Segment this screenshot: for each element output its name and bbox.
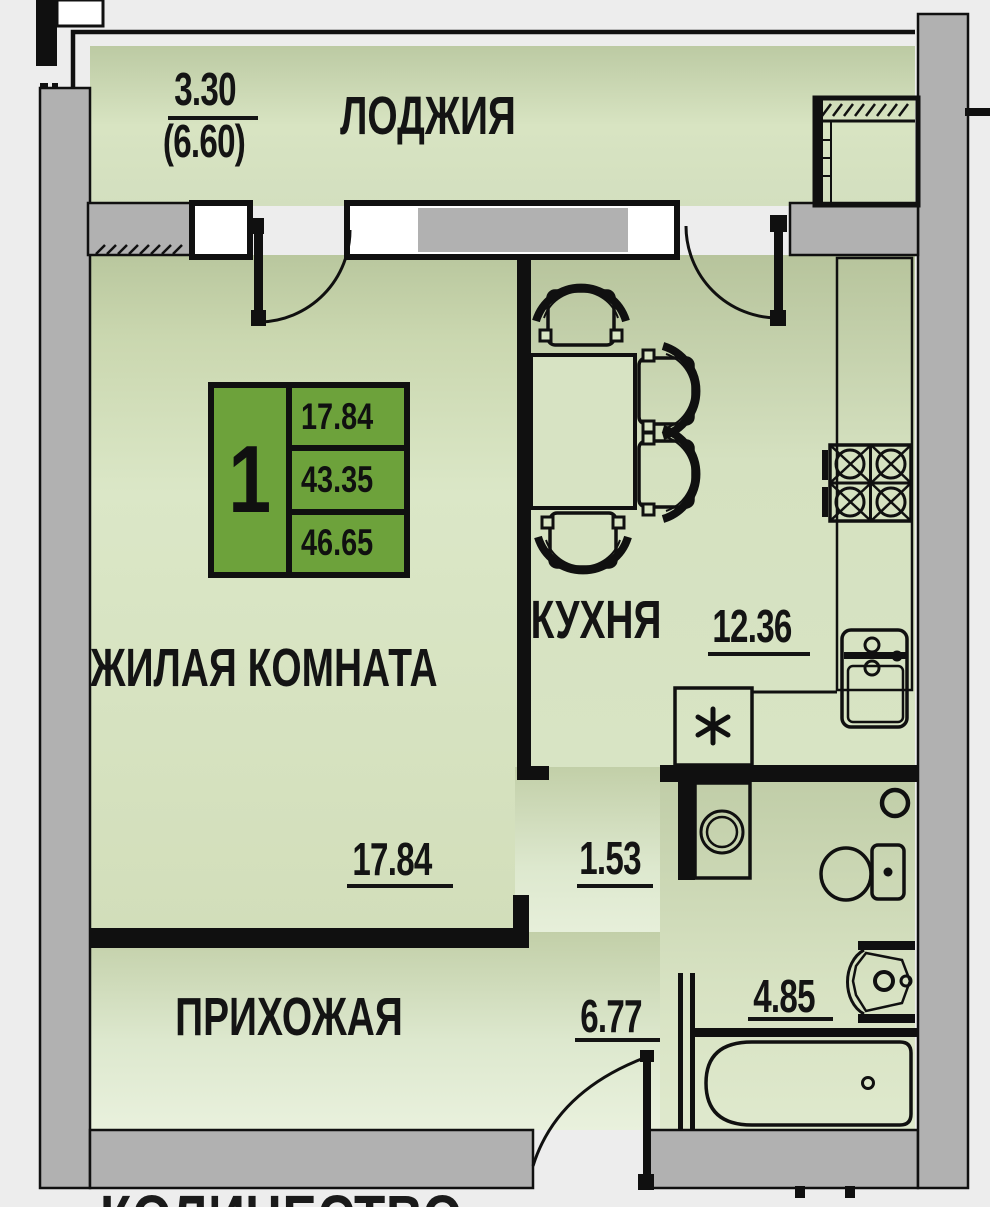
unit-number-cell: 1 <box>214 388 286 572</box>
neighbour-window-fragment <box>57 0 103 26</box>
dining-table-icon <box>531 355 635 508</box>
wall-bottom-left <box>90 1130 533 1188</box>
wall-kitchen-foot <box>531 766 549 780</box>
wall-bathroom-left-upper <box>678 782 695 880</box>
loggia-sill-right <box>790 203 918 255</box>
unit-area-row: 17.84 <box>292 388 404 445</box>
wall-tick <box>795 1186 805 1198</box>
loggia-dim-denominator: (6.60) <box>163 118 245 164</box>
bathroom-dim: 4.85 <box>753 973 815 1019</box>
dim-underline <box>577 884 653 888</box>
wall-bathroom-top <box>660 765 918 782</box>
hallway-label: ПРИХОЖАЯ <box>175 990 403 1044</box>
neighbour-wall-fragment <box>36 0 57 66</box>
wall-left <box>40 88 90 1188</box>
wall-bathroom-left-lower <box>678 973 683 1130</box>
unit-area-total: 46.65 <box>301 522 373 564</box>
unit-area-row: 43.35 <box>292 451 404 508</box>
corridor-dim: 1.53 <box>579 835 641 881</box>
wall-tick <box>40 83 48 88</box>
living-room-dim: 17.84 <box>352 836 431 882</box>
window-center-pier <box>418 208 628 252</box>
cropped-caption: КОЛИЧЕСТВО <box>100 1181 463 1207</box>
unit-info-card: 1 17.84 43.35 46.65 <box>208 382 410 578</box>
floor-plan-canvas: 1 17.84 43.35 46.65 3.30 (6.60) ЛОДЖИЯ Ж… <box>0 0 990 1207</box>
dim-underline <box>575 1038 660 1042</box>
floor-plan-drawing <box>0 0 990 1207</box>
kitchen-dim: 12.36 <box>712 603 791 649</box>
wall-tick <box>52 83 58 88</box>
wall-kitchen-living <box>517 255 531 780</box>
hallway-dim: 6.77 <box>580 993 642 1039</box>
wall-tick <box>845 1186 855 1198</box>
unit-area-living: 17.84 <box>301 396 373 438</box>
wall-bathroom-left-lower <box>690 973 695 1130</box>
unit-number: 1 <box>229 425 272 535</box>
kitchen-label: КУХНЯ <box>531 593 662 647</box>
dim-underline <box>347 884 453 888</box>
unit-area-main: 43.35 <box>301 459 373 501</box>
living-room-label: ЖИЛАЯ КОМНАТА <box>90 641 437 695</box>
loggia-label: ЛОДЖИЯ <box>340 89 516 143</box>
wall-right <box>918 14 968 1188</box>
dim-underline <box>748 1017 833 1021</box>
wall-living-hallway <box>90 928 513 948</box>
dim-underline <box>708 652 810 656</box>
unit-area-row: 46.65 <box>292 515 404 572</box>
wall-living-hallway-stub <box>513 895 529 948</box>
loggia-dim-numerator: 3.30 <box>174 66 236 112</box>
living-room <box>90 255 517 935</box>
wall-tick <box>965 108 990 116</box>
wall-bottom-right <box>648 1130 918 1188</box>
window-living <box>192 203 250 257</box>
